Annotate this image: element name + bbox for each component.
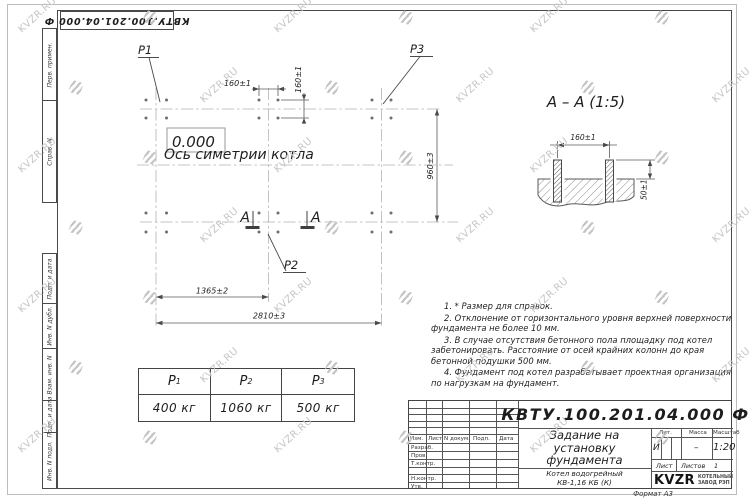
load-table-value: 1060 кг (211, 395, 283, 421)
note-item: 4. Фундамент под котел разрабатывает про… (431, 367, 733, 388)
tb-lit-value: И (653, 443, 660, 453)
tb-col-ndokum: N докум. (444, 436, 470, 442)
load-header-sub: 1 (176, 377, 181, 386)
tb-product-name: Котел водогрейный КВ-1,16 КБ (К) (518, 468, 651, 490)
tb-designation: КВТУ.100.201.04.000 Ф (518, 401, 733, 428)
load-header-sub: 2 (247, 377, 252, 386)
section-view-title: A – A (1:5) (546, 93, 625, 111)
tb-row-tkontr: Т.контр. (411, 461, 435, 467)
anchor-bolt-section (606, 160, 614, 202)
section-letter-left: A (239, 210, 250, 226)
section-dimension-arrows (558, 143, 653, 179)
tb-document-title: Задание на установку фундамента (518, 428, 651, 468)
load-header-letter: P (240, 374, 248, 389)
note-item: 3. В случае отсутствия бетонного пола пл… (431, 335, 733, 367)
tb-sheets-label: Листов (681, 462, 705, 470)
tb-col-izm: Изм. (410, 436, 423, 442)
tb-col-podp: Подп. (473, 436, 490, 442)
side-stamp-top: Перв. примен. Справ. N (42, 28, 57, 203)
tb-row-razrab: Разраб. (411, 445, 433, 451)
tb-sheet-label: Лист (656, 462, 672, 470)
dim-1365-label: 1365±2 (196, 287, 228, 296)
load-header-letter: P (312, 374, 320, 389)
load-header-letter: P (168, 374, 176, 389)
tb-scale-value: 1:20 (713, 442, 735, 453)
note-item: 2. Отклонение от горизонтального уровня … (431, 313, 733, 334)
side-cell: Взам. инв. N (43, 349, 56, 401)
tb-col-data: Дата (499, 436, 513, 442)
title-block: Изм. Лист N докум. Подп. Дата Разраб. Пр… (408, 400, 732, 489)
side-label: Подп. и дата (46, 258, 53, 299)
section-view: 160±1 50±1 (538, 133, 655, 206)
load-header-sub: 3 (320, 377, 325, 386)
side-label: Инв. N подл. (46, 441, 53, 481)
tb-col-list: Лист (428, 436, 442, 442)
dim-2810-label: 2810±3 (253, 312, 285, 321)
kvzr-logo-tagline: КОТЕЛЬНЫЙ ЗАВОД РЭП (698, 475, 733, 487)
tb-mass-value: – (694, 443, 699, 453)
side-cell: Инв. N дубл. (43, 304, 56, 349)
tb-product-line: КВ-1,16 КБ (К) (557, 479, 612, 488)
load-point-p2-label: P2 (284, 258, 298, 272)
load-table-header: P1 (139, 369, 211, 395)
section-dim-50-label: 50±1 (640, 179, 649, 200)
section-dim-160-label: 160±1 (570, 133, 595, 142)
format-label: Формат А3 (612, 490, 694, 498)
tb-row-nkontr: Н.контр. (411, 476, 436, 482)
drawing-sheet: КВТУ.100.201.04.000 Ф Перв. примен. Спра… (0, 0, 750, 500)
load-table-header: P3 (282, 369, 354, 395)
tb-row-prov: Пров. (411, 453, 427, 459)
side-cell: Подп. и дата (43, 254, 56, 304)
plan-centerlines (137, 88, 458, 328)
side-cell: Справ. N (43, 101, 56, 203)
kvzr-tagline-line: ЗАВОД РЭП (698, 481, 733, 487)
section-letter-right: A (310, 210, 321, 226)
tb-row-utv: Утв. (411, 484, 423, 490)
kvzr-logo: KVZR КОТЕЛЬНЫЙ ЗАВОД РЭП (651, 471, 733, 490)
tb-doc-title-line: Задание на (550, 429, 620, 442)
tb-lit-label: Лит. (659, 430, 672, 436)
side-label: Инв. N дубл. (46, 306, 53, 345)
dim-960-label: 960±3 (426, 152, 435, 179)
load-table: P1 P2 P3 400 кг 1060 кг 500 кг (138, 368, 355, 422)
section-dimension-lines (550, 141, 655, 179)
side-stamp-bottom: Подп. и дата Инв. N дубл. Взам. инв. N П… (42, 253, 57, 489)
tb-scale-label: Масштаб (713, 430, 740, 436)
side-label: Взам. инв. N (46, 355, 53, 394)
load-point-p3-label: P3 (410, 42, 424, 56)
dim-160-vertical-label: 160±1 (294, 66, 303, 93)
load-table-header: P2 (211, 369, 283, 395)
anchor-bolt-section (554, 160, 562, 202)
side-cell: Инв. N подл. (43, 433, 56, 488)
tb-doc-title-line: фундамента (546, 454, 622, 467)
load-table-value: 500 кг (282, 395, 354, 421)
section-cut-marks (246, 211, 315, 228)
tb-sheets-value: 1 (714, 462, 718, 470)
side-cell: Подп. и дата (43, 401, 56, 433)
side-label: Перв. примен. (46, 42, 53, 87)
load-table-value: 400 кг (139, 395, 211, 421)
load-point-p1-label: P1 (138, 43, 152, 57)
note-item: 1. * Размер для справок. (431, 301, 733, 312)
side-cell: Перв. примен. (43, 29, 56, 101)
dim-160-horizontal-label: 160±1 (224, 79, 251, 88)
side-label: Справ. N (46, 138, 53, 165)
boiler-axis-label: Ось симетрии котла (164, 147, 314, 163)
kvzr-logo-name: KVZR (654, 473, 695, 488)
technical-notes: 1. * Размер для справок. 2. Отклонение о… (431, 301, 733, 389)
side-label: Подп. и дата (46, 396, 53, 437)
tb-mass-label: Масса (689, 430, 707, 436)
